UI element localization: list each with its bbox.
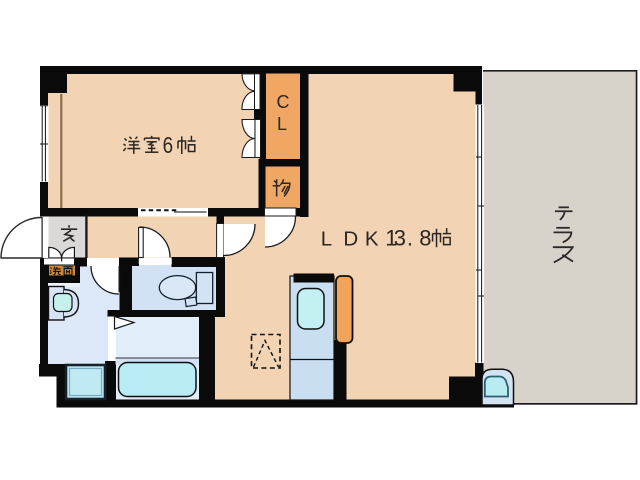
- svg-text:L: L: [321, 228, 332, 251]
- svg-text:C: C: [277, 92, 290, 112]
- svg-text:3: 3: [394, 226, 406, 251]
- svg-text:.: .: [407, 226, 413, 251]
- svg-text:D: D: [343, 228, 358, 251]
- svg-text:8: 8: [419, 226, 431, 251]
- svg-text:K: K: [365, 228, 379, 251]
- svg-text:L: L: [277, 114, 287, 134]
- svg-text:6: 6: [163, 132, 174, 158]
